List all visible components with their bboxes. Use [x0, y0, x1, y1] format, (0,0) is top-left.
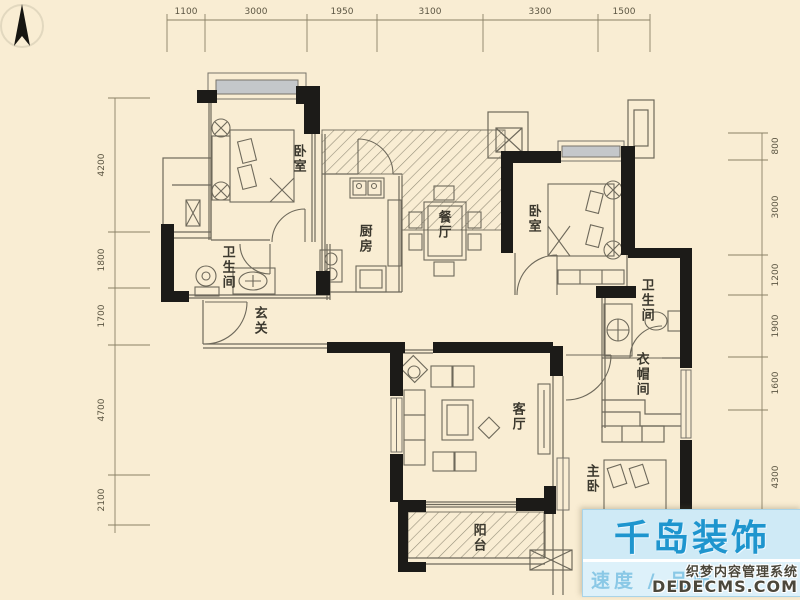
room-label-master: 主卧: [584, 464, 598, 494]
watermark-cms: 织梦内容管理系统 DEDECMS.COM: [652, 566, 798, 596]
dim-left-1: 4200: [97, 154, 107, 177]
dim-top-6: 1500: [613, 7, 636, 17]
watermark-brand-row: 千岛装饰: [583, 510, 800, 562]
dim-right-6: 4300: [771, 466, 781, 489]
dim-left-2: 1800: [97, 249, 107, 272]
dim-right-1: 800: [771, 137, 781, 154]
room-label-bath1: 卫生间: [220, 245, 234, 290]
watermark-box: 千岛装饰 速度 / 品质 织梦内容管理系统 DEDECMS.COM: [582, 509, 800, 597]
dim-left-4: 4700: [97, 399, 107, 422]
room-label-living: 客厅: [510, 402, 524, 432]
dim-right-4: 1900: [771, 315, 781, 338]
dim-top-5: 3300: [529, 7, 552, 17]
room-label-cloak: 衣帽间: [634, 352, 648, 397]
dim-right-2: 3000: [771, 196, 781, 219]
dim-right-5: 1600: [771, 372, 781, 395]
watermark-brand: 千岛装饰: [614, 509, 770, 561]
dim-left-3: 1700: [97, 305, 107, 328]
dim-right-3: 1200: [771, 264, 781, 287]
room-label-bedroom1: 卧室: [291, 144, 305, 174]
watermark-tagline-row: 速度 / 品质 织梦内容管理系统 DEDECMS.COM: [583, 562, 800, 596]
room-label-kitchen: 厨房: [357, 224, 371, 254]
room-label-bedroom2: 卧室: [526, 204, 540, 234]
room-label-bath2: 卫生间: [639, 278, 653, 323]
dim-top-4: 3100: [419, 7, 442, 17]
dim-top-1: 1100: [175, 7, 198, 17]
room-label-entry: 玄关: [252, 306, 266, 336]
dim-top-3: 1950: [331, 7, 354, 17]
floor-plan-page: 1100 3000 1950 3100 3300 1500 4200 1800 …: [0, 0, 800, 600]
north-arrow-icon: [1, 4, 43, 47]
room-label-dining: 餐厅: [436, 210, 450, 240]
room-label-balcony: 阳台: [471, 523, 485, 553]
watermark-cms-line2: DEDECMS.COM: [652, 579, 798, 596]
dim-top-2: 3000: [245, 7, 268, 17]
dim-left-5: 2100: [97, 489, 107, 512]
